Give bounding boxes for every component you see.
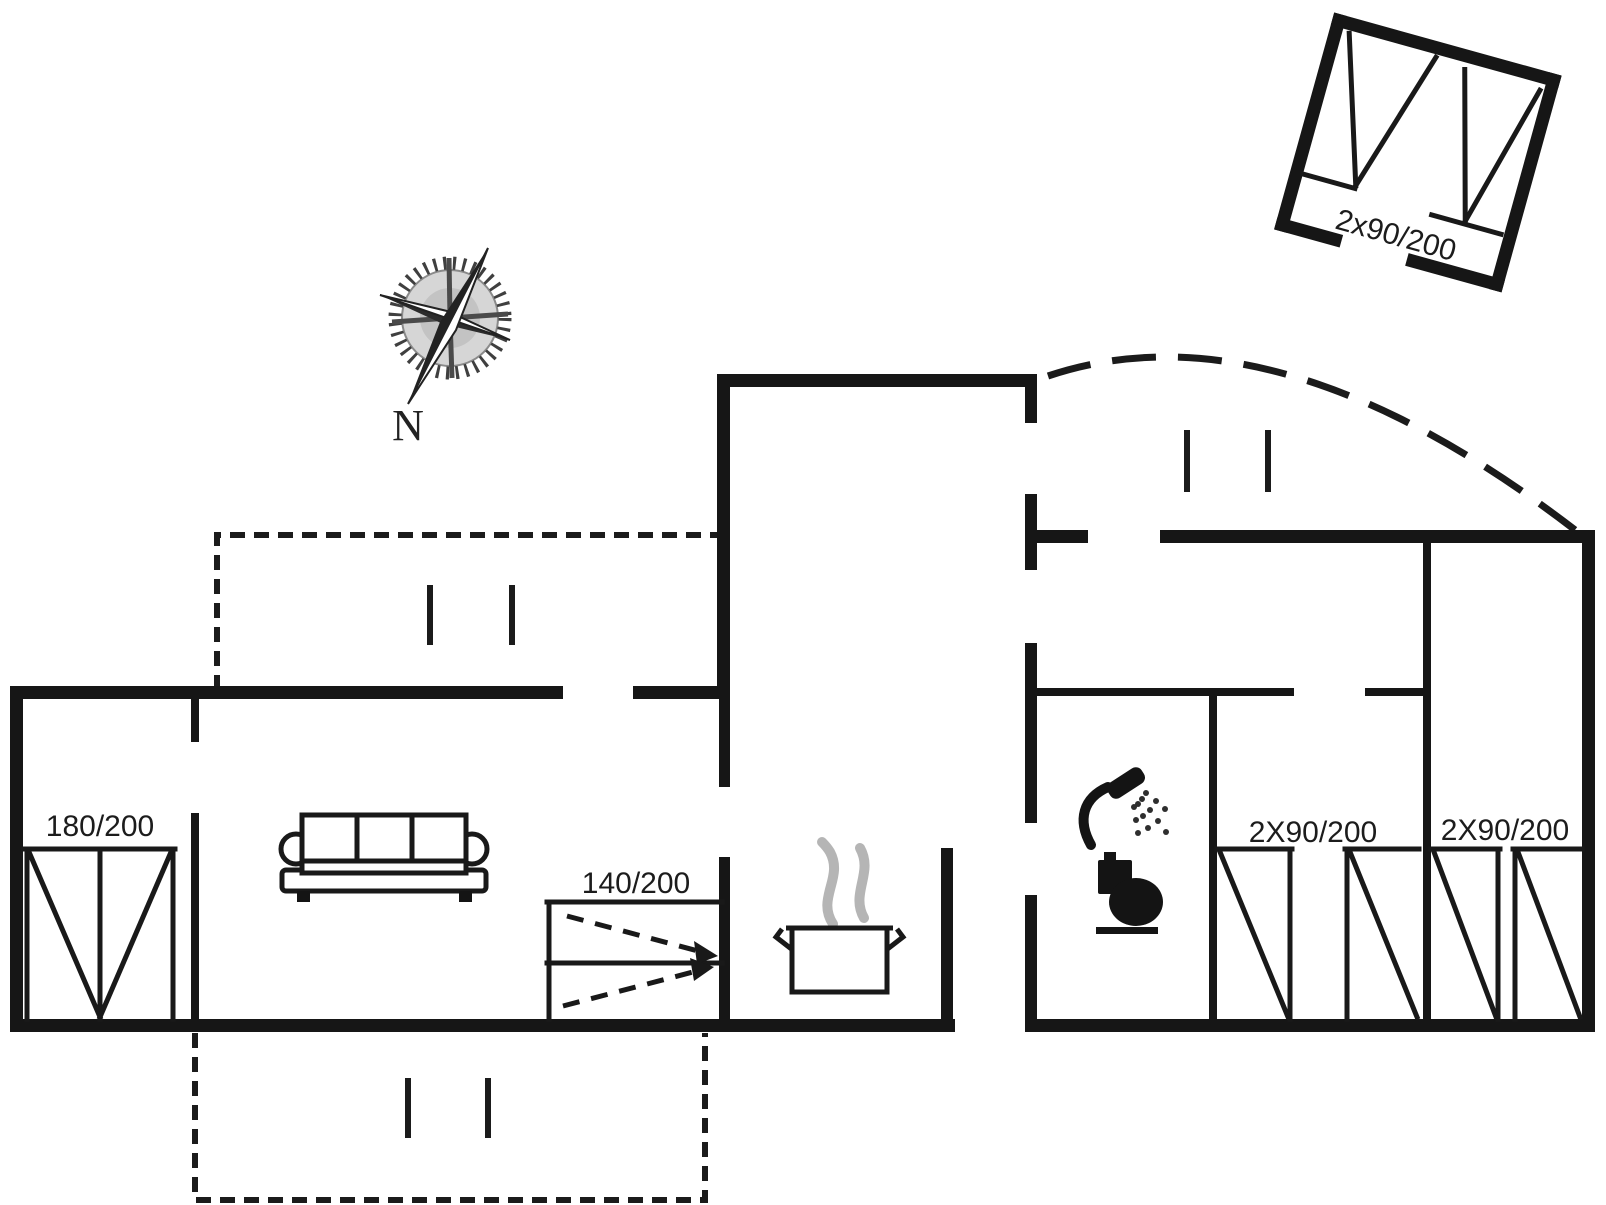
wall-segment [1423,543,1431,1019]
bed-duvet [1518,852,1580,1017]
terrace-curved-outline [1048,357,1588,540]
wall-segment [1025,387,1037,423]
sofa-backrest [302,815,466,873]
single-bed-icon [1217,849,1292,1019]
wall-segment [191,813,199,1019]
compass-north-label: N [392,401,424,450]
spray-dot [1135,830,1141,836]
spray-dot [1147,807,1153,813]
wall-segment [1160,530,1595,543]
terrace-northwest-outline [217,535,717,690]
wall-segment [1025,643,1037,823]
bed-duvet [1356,46,1436,197]
bed-duvet [1220,852,1288,1017]
wall-segment [633,686,730,699]
cooking-pot-icon [776,928,903,992]
wall-segment [10,686,563,699]
wall-segment [1365,688,1423,696]
single-bed-icon [1345,849,1419,1019]
annex-room: 2x90/200 [1274,13,1562,293]
shower-head [1104,765,1147,802]
bed-size-label-bedroom1: 2X90/200 [1249,816,1377,849]
wall-segment [1582,543,1595,1019]
wall-segment [10,1019,955,1032]
bed-edge [1303,174,1355,188]
foldout-arrow [567,916,698,951]
wall-segment [1489,72,1562,292]
bed-duvet [1426,69,1505,221]
steam-wave [822,842,834,924]
wall-segment [191,699,199,742]
spray-dot [1139,796,1145,802]
wall-segment [1025,895,1037,1019]
shower-hose [1084,787,1108,845]
spray-dot [1145,825,1151,831]
wall-segment [1209,696,1217,1019]
steam-icon [822,842,865,924]
bed-duvet [29,852,100,1017]
spray-dot [1155,818,1161,824]
toilet-icon [1096,852,1163,934]
double-bed-icon [24,849,175,1019]
pot-body [792,928,887,992]
foldout-arrow [563,972,693,1006]
bed-size-label-master: 180/200 [46,810,154,843]
spray-dot [1133,817,1139,823]
wall-segment [1274,13,1347,233]
wall-segment [10,686,23,1032]
compass-rose-icon [380,248,510,404]
foldout-bed-icon [547,902,722,1019]
single-bed-icon [1513,849,1582,1019]
bed-duvet [100,852,171,1017]
spray-dot [1131,804,1137,810]
toilet-bowl [1109,878,1163,926]
floor-plan-drawing: 180/200 140/200 [0,0,1606,1205]
shower-icon [1084,765,1169,845]
floor-plan-page: 180/200 140/200 [0,0,1606,1205]
terrace-south-outline [195,1033,705,1200]
wall-segment [719,857,730,1019]
bed-size-label-foldout: 140/200 [582,867,690,900]
sofa-foot [459,891,472,902]
spray-dot [1143,790,1149,796]
bed-duvet [1350,852,1417,1017]
bed-size-label-bedroom2: 2X90/200 [1441,814,1569,847]
bed-size-label-annex: 2x90/200 [1332,203,1460,268]
sofa-icon [281,815,487,902]
sofa-foot [297,891,310,902]
spray-dot [1162,806,1168,812]
single-bed-icon [1431,849,1500,1019]
toilet-base [1096,927,1158,934]
spray-dot [1140,813,1146,819]
steam-wave [859,848,864,918]
right-wing-walls [1025,530,1595,1032]
spray-dot [1153,798,1159,804]
wall-segment [719,699,730,787]
wall-segment [717,387,730,692]
spray-dot [1163,829,1169,835]
wall-segment [1025,1019,1595,1032]
wall-segment [1025,530,1088,543]
wall-segment [1331,13,1562,89]
wall-segment [1037,688,1294,696]
wall-segment [941,848,953,1019]
bed-duvet [1434,852,1496,1017]
terrace-outlines [195,357,1588,1200]
wall-segment [717,374,1037,387]
